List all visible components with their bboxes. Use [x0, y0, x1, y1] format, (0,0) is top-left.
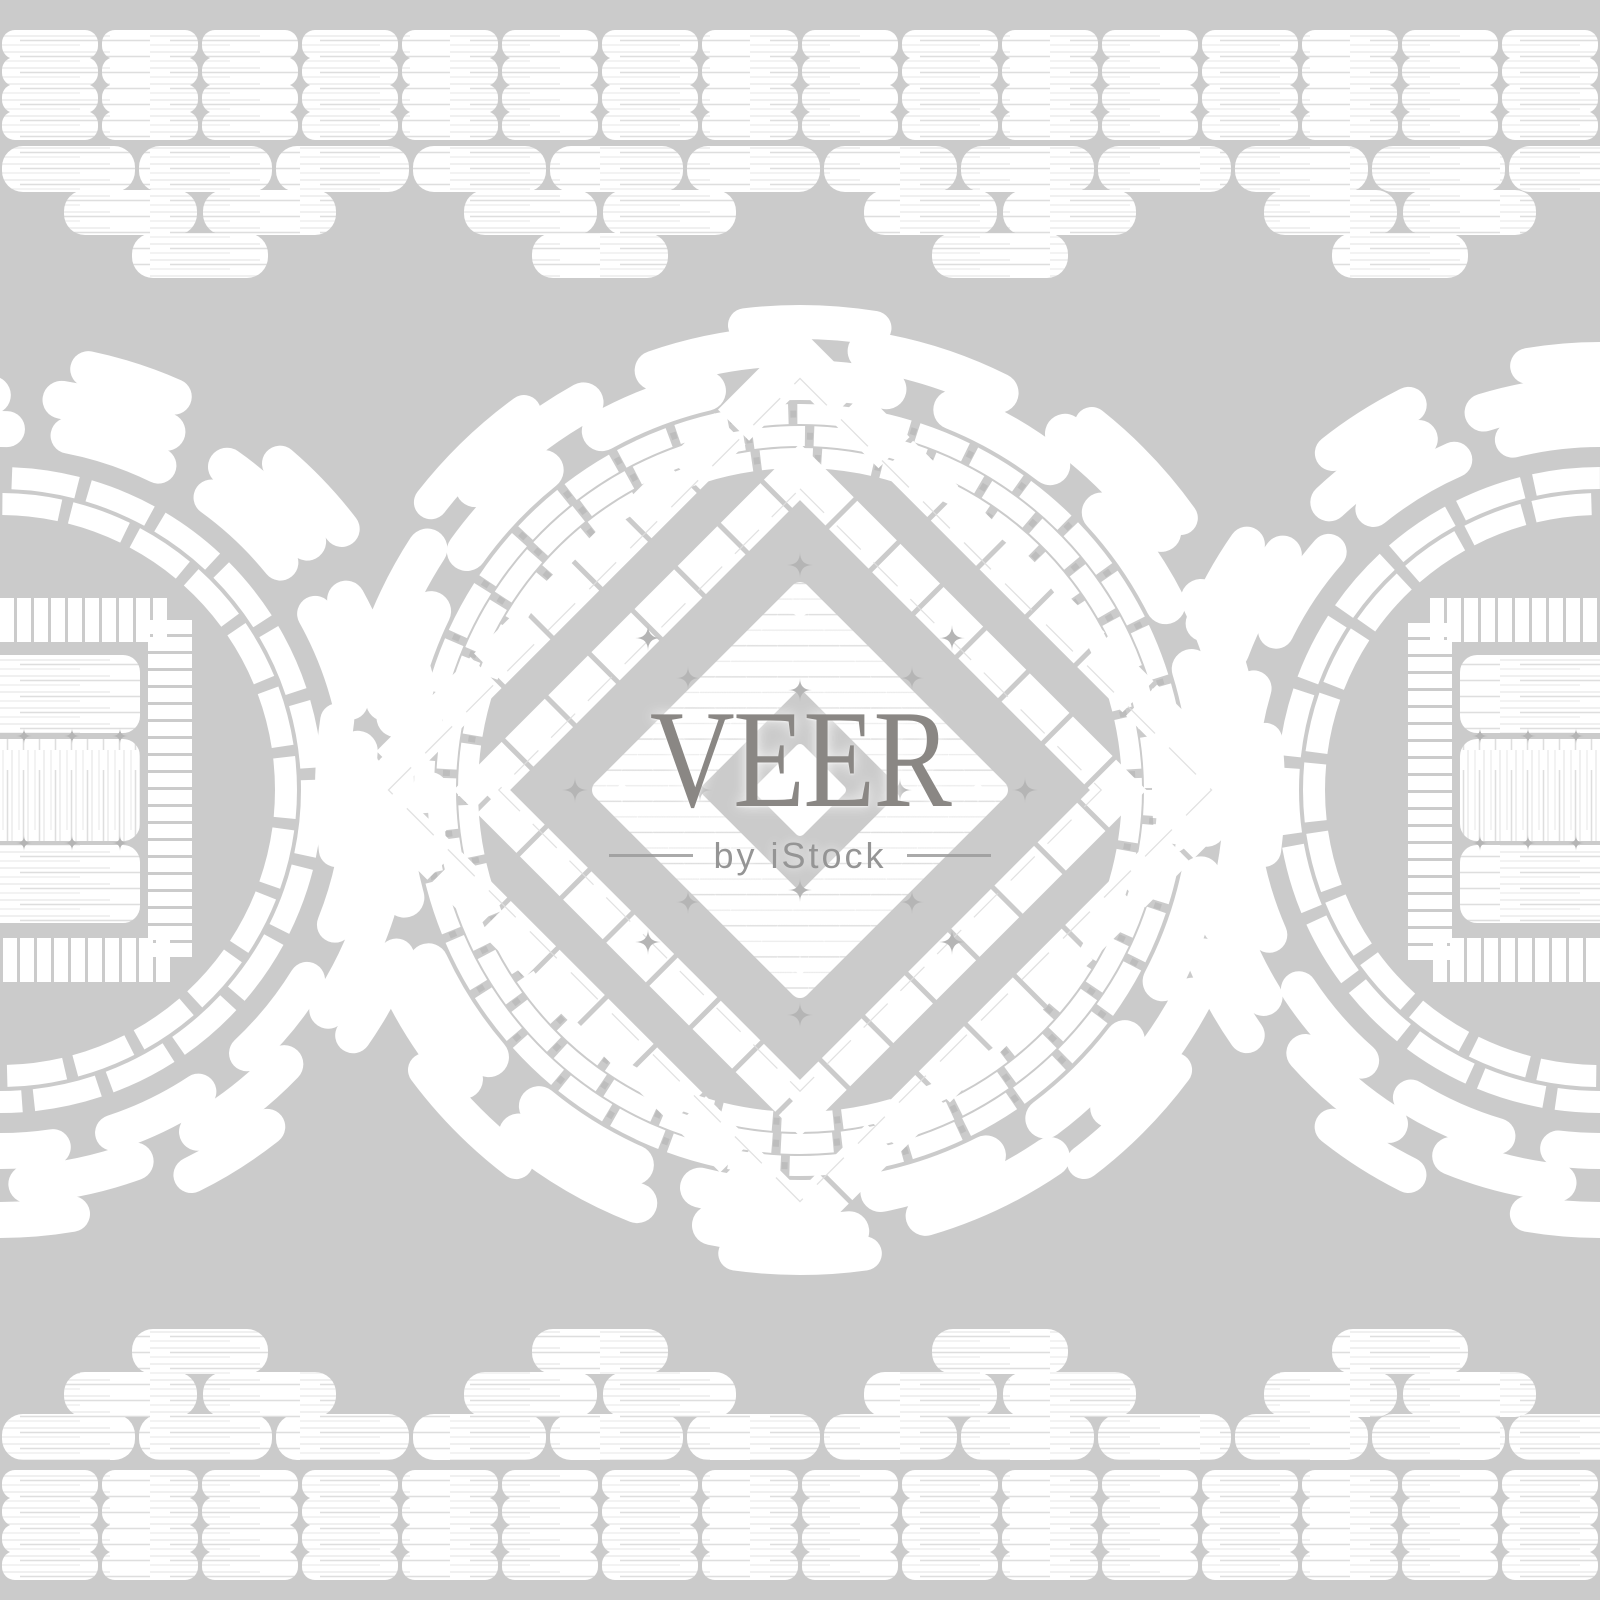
center-medallion	[332, 322, 1268, 1258]
stock-image-canvas: VEER by iStock	[0, 0, 1600, 1600]
embroidery-pattern	[0, 0, 1600, 1600]
